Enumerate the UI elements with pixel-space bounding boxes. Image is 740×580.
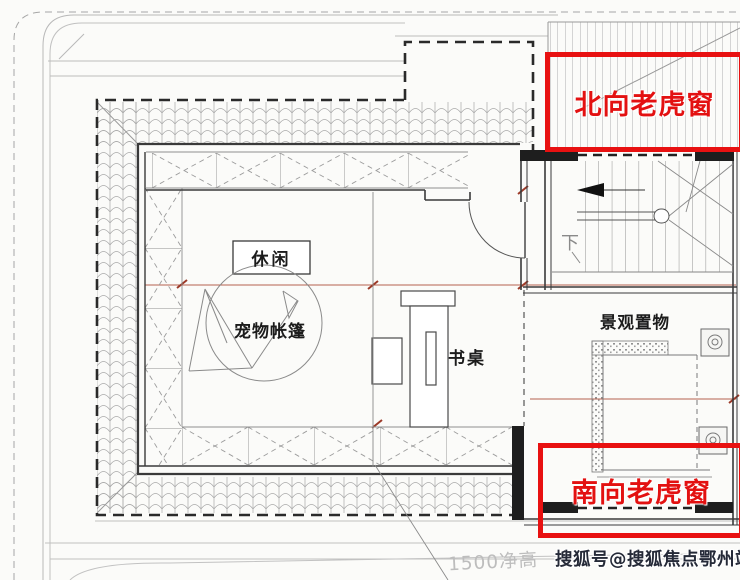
- ceiling-height-note: 1500净高: [447, 546, 538, 577]
- wall-truss-bands: [145, 152, 512, 466]
- staircase: [552, 161, 733, 272]
- north-dormer-annotation-box: 北向老虎窗: [545, 52, 740, 152]
- landscape-shelf-label: 景观置物: [588, 309, 682, 333]
- desk-label: 书桌: [438, 344, 496, 369]
- flue-box: [701, 329, 729, 356]
- stairs-down-label: 下: [561, 229, 579, 255]
- newel-post: [654, 209, 669, 223]
- door-swing-icon: [469, 202, 525, 258]
- north-dormer-annotation-label: 北向老虎窗: [575, 83, 715, 122]
- south-dormer-annotation-box: 南向老虎窗: [538, 443, 740, 538]
- south-dormer-annotation-label: 南向老虎窗: [571, 471, 711, 510]
- attic-floor-plan: 休闲 宠物帐篷 书桌 景观置物 下 北向老虎窗 南向老虎窗 1500净高 搜狐号…: [0, 0, 740, 580]
- pet-tent-label: 宠物帐篷: [218, 317, 322, 342]
- leisure-room-label: 休闲: [233, 241, 310, 274]
- watermark-text: 搜狐号@搜狐焦点鄂州站: [555, 546, 740, 571]
